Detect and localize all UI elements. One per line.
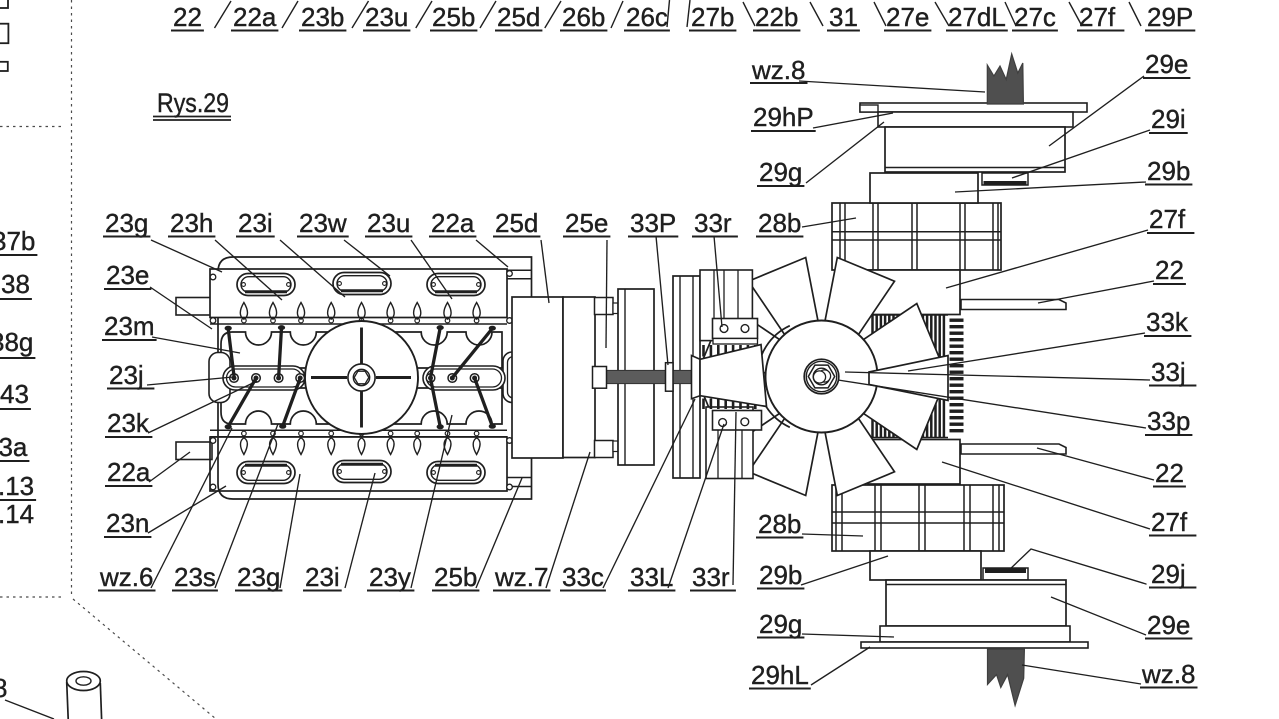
svg-text:27f: 27f [1149,204,1186,234]
svg-text:33r: 33r [694,208,732,238]
svg-text:23i: 23i [305,562,340,592]
svg-text:23j: 23j [109,360,144,390]
svg-text:25d: 25d [497,2,540,32]
svg-text:27f: 27f [1151,507,1188,537]
svg-text:29g: 29g [759,157,802,187]
svg-text:29j: 29j [1151,559,1186,589]
svg-text:22: 22 [173,2,202,32]
svg-text:29b: 29b [759,560,802,590]
svg-text:8: 8 [0,673,7,703]
svg-text:27f: 27f [1079,2,1116,32]
svg-text:33r: 33r [692,562,730,592]
svg-text:25b: 25b [434,562,477,592]
svg-text:29P: 29P [1147,2,1193,32]
svg-text:22a: 22a [233,2,277,32]
svg-text:.13: .13 [0,471,34,501]
svg-text:27c: 27c [1014,2,1056,32]
svg-text:22: 22 [1155,458,1184,488]
svg-text:29b: 29b [1147,156,1190,186]
svg-text:22b: 22b [755,2,798,32]
svg-text:23g: 23g [237,562,280,592]
svg-text:22a: 22a [431,208,475,238]
svg-text:23u: 23u [365,2,408,32]
svg-text:43: 43 [0,379,29,409]
svg-text:25d: 25d [495,208,538,238]
svg-text:25b: 25b [432,2,475,32]
svg-text:22: 22 [1155,255,1184,285]
svg-text:23h: 23h [170,208,213,238]
svg-text:Rys.29: Rys.29 [157,88,229,118]
svg-text:23g: 23g [105,208,148,238]
svg-text:23u: 23u [367,208,410,238]
svg-text:33j: 33j [1151,357,1186,387]
svg-text:29e: 29e [1145,49,1188,79]
svg-text:27b: 27b [691,2,734,32]
svg-text:22a: 22a [107,457,151,487]
svg-text:38g: 38g [0,327,33,357]
svg-text:27dL: 27dL [948,2,1006,32]
svg-text:33L: 33L [630,562,673,592]
svg-text:26b: 26b [562,2,605,32]
svg-text:wz.6: wz.6 [99,562,153,592]
svg-text:wz.8: wz.8 [751,55,805,85]
svg-text:29hL: 29hL [751,660,809,690]
svg-text:23m: 23m [104,311,155,341]
svg-text:23e: 23e [106,260,149,290]
svg-text:33P: 33P [630,208,676,238]
svg-text:23b: 23b [301,2,344,32]
svg-text:43a: 43a [0,432,28,462]
svg-text:wz.8: wz.8 [1141,659,1195,689]
svg-text:23n: 23n [106,508,149,538]
svg-text:23s: 23s [174,562,216,592]
svg-text:26c: 26c [626,2,668,32]
svg-text:23w: 23w [299,208,347,238]
svg-text:25e: 25e [565,208,608,238]
svg-text:33k: 33k [1146,307,1189,337]
svg-text:wz.7: wz.7 [494,562,548,592]
svg-text:27e: 27e [886,2,929,32]
svg-text:28b: 28b [758,208,801,238]
svg-text:29i: 29i [1151,104,1186,134]
svg-text:33c: 33c [562,562,604,592]
svg-text:28b: 28b [758,509,801,539]
svg-text:38: 38 [1,269,30,299]
svg-text:29e: 29e [1147,610,1190,640]
svg-text:23i: 23i [238,208,273,238]
svg-text:29hP: 29hP [753,102,814,132]
svg-text:23y: 23y [369,562,411,592]
svg-text:31: 31 [829,2,858,32]
svg-text:29g: 29g [759,609,802,639]
svg-text:33p: 33p [1147,406,1190,436]
svg-text:.14: .14 [0,499,34,529]
svg-text:37b: 37b [0,226,35,256]
svg-text:23k: 23k [107,408,150,438]
